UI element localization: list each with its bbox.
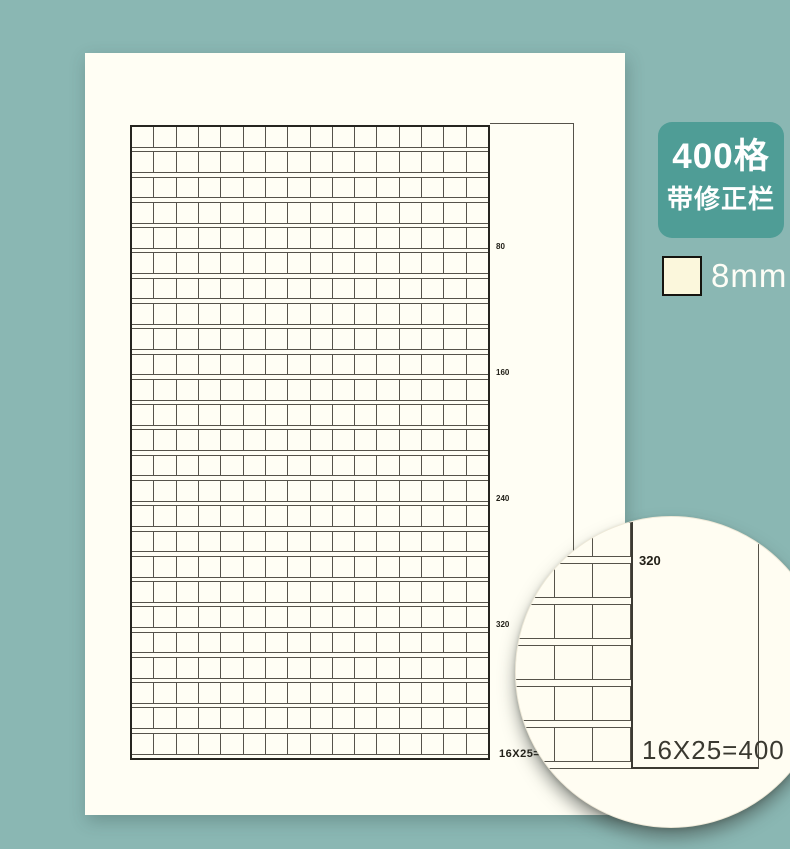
grid-cell	[221, 557, 243, 577]
grid-cell	[555, 646, 593, 679]
grid-cell	[422, 633, 444, 653]
grid-cell	[221, 607, 243, 627]
grid-cell	[288, 329, 310, 349]
grid-cell	[311, 607, 333, 627]
grid-cell	[333, 152, 355, 172]
grid-cell	[177, 683, 199, 703]
grid-cell	[400, 532, 422, 552]
grid-cell	[154, 557, 176, 577]
grid-row	[132, 127, 488, 152]
grid-cell	[221, 279, 243, 299]
grid-cell	[311, 228, 333, 248]
grid-cell	[154, 304, 176, 324]
grid-cell	[593, 687, 631, 720]
grid-cell	[132, 355, 154, 375]
grid-row	[132, 304, 488, 329]
grid-cell	[288, 380, 310, 400]
grid-cell	[355, 430, 377, 450]
grid-cell	[444, 481, 466, 501]
grid-cell	[400, 228, 422, 248]
grid-cell	[444, 253, 466, 273]
grid-cell	[244, 203, 266, 223]
grid-cell	[311, 279, 333, 299]
product-image: _____年__月__日 星期__天气_____ 80 160 240 320 …	[0, 0, 790, 849]
grid-cell-row	[132, 633, 488, 654]
grid-cell	[333, 734, 355, 754]
grid-cell	[400, 683, 422, 703]
grid-cell	[221, 355, 243, 375]
spec-badge: 400格 带修正栏	[658, 122, 784, 238]
grid-cell	[177, 253, 199, 273]
grid-cell	[154, 456, 176, 476]
grid-cell	[266, 279, 288, 299]
grid-cell	[400, 152, 422, 172]
grid-cell	[422, 152, 444, 172]
grid-cell	[132, 430, 154, 450]
grid-cell	[444, 506, 466, 526]
grid-cell	[244, 582, 266, 602]
grid-cell-row	[515, 687, 631, 721]
cell-size-swatch	[662, 256, 702, 296]
grid-cell	[422, 380, 444, 400]
grid-cell	[132, 633, 154, 653]
grid-cell	[199, 506, 221, 526]
grid-cell-row	[132, 279, 488, 300]
margin-top-line	[490, 123, 574, 124]
grid-cell	[132, 228, 154, 248]
grid-cell	[154, 683, 176, 703]
grid-cell	[266, 152, 288, 172]
grid-cell	[288, 658, 310, 678]
grid-cell	[177, 355, 199, 375]
grid-cell	[132, 203, 154, 223]
grid-cell	[177, 380, 199, 400]
grid-cell	[154, 506, 176, 526]
grid-cell	[221, 532, 243, 552]
grid-cell	[355, 633, 377, 653]
grid-cell-row	[132, 127, 488, 148]
grid-cell	[467, 355, 488, 375]
grid-cell	[377, 405, 399, 425]
grid-cell	[555, 605, 593, 638]
grid-cell	[377, 734, 399, 754]
grid-cell	[288, 481, 310, 501]
grid-cell	[311, 203, 333, 223]
grid-cell	[377, 532, 399, 552]
grid-cell	[199, 456, 221, 476]
grid-cell	[132, 178, 154, 198]
grid-cell	[467, 178, 488, 198]
grid-cell	[221, 430, 243, 450]
grid-cell	[400, 329, 422, 349]
grid-row	[515, 728, 631, 769]
grid-row	[515, 564, 631, 605]
grid-cell	[444, 456, 466, 476]
grid-cell	[311, 127, 333, 147]
grid-cell	[377, 355, 399, 375]
grid-cell	[333, 633, 355, 653]
grid-cell	[311, 582, 333, 602]
grid-cell	[355, 708, 377, 728]
grid-cell	[355, 329, 377, 349]
grid-cell	[177, 607, 199, 627]
grid-cell	[467, 329, 488, 349]
grid-cell	[467, 380, 488, 400]
grid-cell	[244, 329, 266, 349]
grid-cell	[467, 481, 488, 501]
grid-cell	[288, 152, 310, 172]
grid-cell	[355, 380, 377, 400]
grid-row	[132, 203, 488, 228]
grid-cell	[132, 380, 154, 400]
grid-cell	[311, 304, 333, 324]
grid-cell	[177, 178, 199, 198]
grid-cell	[333, 329, 355, 349]
grid-cell	[244, 430, 266, 450]
grid-cell	[593, 646, 631, 679]
badge-feature: 带修正栏	[658, 179, 784, 219]
grid-cell	[177, 734, 199, 754]
grid-cell	[311, 430, 333, 450]
grid-cell	[132, 557, 154, 577]
grid-cell	[377, 203, 399, 223]
grid-cell	[422, 405, 444, 425]
magnified-bottom-line	[631, 767, 759, 769]
grid-cell	[333, 582, 355, 602]
grid-cell	[221, 405, 243, 425]
grid-row	[132, 557, 488, 582]
grid-cell	[132, 405, 154, 425]
grid-cell	[199, 481, 221, 501]
magnified-row-marker: 320	[639, 553, 661, 568]
grid-cell	[288, 683, 310, 703]
grid-row	[515, 687, 631, 728]
grid-cell	[333, 456, 355, 476]
grid-cell	[516, 646, 554, 679]
grid-cell	[467, 152, 488, 172]
grid-cell-row	[132, 380, 488, 401]
grid-cell	[199, 582, 221, 602]
grid-cell	[199, 430, 221, 450]
grid-cell	[333, 228, 355, 248]
grid-cell	[199, 203, 221, 223]
grid-cell-row	[515, 605, 631, 639]
grid-cell	[244, 178, 266, 198]
grid-cell	[422, 481, 444, 501]
grid-cell	[177, 633, 199, 653]
grid-cell	[177, 304, 199, 324]
grid-cell	[444, 708, 466, 728]
grid-cell	[288, 279, 310, 299]
grid-row	[132, 658, 488, 683]
grid-cell	[444, 355, 466, 375]
grid-cell-row	[132, 178, 488, 199]
grid-cell	[400, 506, 422, 526]
grid-cell	[199, 658, 221, 678]
grid-cell	[311, 152, 333, 172]
grid-cell	[377, 329, 399, 349]
grid-cell	[266, 557, 288, 577]
grid-cell	[444, 228, 466, 248]
grid-cell	[444, 203, 466, 223]
grid-cell	[288, 734, 310, 754]
grid-cell	[266, 380, 288, 400]
grid-cell	[221, 380, 243, 400]
grid-cell	[555, 523, 593, 556]
grid-cell	[199, 683, 221, 703]
grid-cell	[244, 127, 266, 147]
grid-cell	[311, 506, 333, 526]
grid-cell	[221, 658, 243, 678]
grid-cell	[377, 708, 399, 728]
grid-cell	[400, 582, 422, 602]
grid-cell	[467, 304, 488, 324]
grid-cell	[288, 532, 310, 552]
grid-cell	[516, 564, 554, 597]
grid-cell	[333, 708, 355, 728]
grid-cell	[244, 708, 266, 728]
grid-cell	[400, 253, 422, 273]
grid-cell	[311, 355, 333, 375]
badge-grid-count: 400格	[658, 135, 784, 179]
grid-cell	[400, 405, 422, 425]
grid-cell	[244, 481, 266, 501]
grid-row	[132, 683, 488, 708]
grid-cell-row	[132, 481, 488, 502]
grid-cell	[467, 734, 488, 754]
grid-cell	[400, 734, 422, 754]
grid-cell	[355, 253, 377, 273]
grid-cell	[444, 405, 466, 425]
grid-cell	[244, 355, 266, 375]
grid-cell	[311, 456, 333, 476]
grid-cell	[400, 304, 422, 324]
magnified-total-label: 16X25=400	[642, 735, 785, 766]
grid-cell	[467, 582, 488, 602]
grid-cell	[199, 253, 221, 273]
grid-cell	[333, 683, 355, 703]
grid-cell	[444, 430, 466, 450]
grid-cell	[311, 481, 333, 501]
grid-cell	[288, 178, 310, 198]
cell-size-label: 8mm	[662, 256, 787, 296]
grid-cell	[244, 633, 266, 653]
grid-cell	[422, 607, 444, 627]
grid-cell-row	[515, 523, 631, 557]
grid-cell	[422, 582, 444, 602]
grid-cell	[132, 506, 154, 526]
grid-cell	[467, 658, 488, 678]
grid-cell	[244, 607, 266, 627]
grid-cell	[422, 683, 444, 703]
grid-row	[132, 178, 488, 203]
grid-cell	[355, 456, 377, 476]
grid-cell	[444, 380, 466, 400]
grid-cell	[199, 127, 221, 147]
grid-cell	[266, 127, 288, 147]
grid-cell	[221, 152, 243, 172]
grid-cell	[154, 127, 176, 147]
grid-cell	[132, 532, 154, 552]
grid-cell	[355, 734, 377, 754]
grid-cell	[154, 329, 176, 349]
grid-cell	[199, 607, 221, 627]
grid-cell	[400, 279, 422, 299]
grid-cell	[422, 708, 444, 728]
grid-cell	[516, 605, 554, 638]
grid-row	[132, 582, 488, 607]
grid-cell	[266, 683, 288, 703]
grid-cell	[266, 253, 288, 273]
grid-cell	[132, 481, 154, 501]
grid-cell	[333, 304, 355, 324]
grid-cell	[244, 506, 266, 526]
grid-cell	[377, 557, 399, 577]
grid-cell	[467, 228, 488, 248]
grid-cell	[422, 456, 444, 476]
grid-cell	[221, 708, 243, 728]
grid-cell	[177, 203, 199, 223]
grid-cell	[288, 355, 310, 375]
grid-row	[132, 506, 488, 531]
grid-cell	[132, 658, 154, 678]
grid-cell	[422, 203, 444, 223]
grid-cell	[593, 564, 631, 597]
grid-cell-row	[132, 582, 488, 603]
grid-cell-row	[132, 658, 488, 679]
grid-cell	[154, 203, 176, 223]
grid-cell	[244, 380, 266, 400]
grid-cell	[333, 127, 355, 147]
grid-cell	[221, 734, 243, 754]
grid-cell	[154, 152, 176, 172]
grid-cell	[199, 633, 221, 653]
grid-cell	[444, 607, 466, 627]
grid-row	[132, 405, 488, 430]
grid-cell	[154, 430, 176, 450]
grid-cell	[311, 329, 333, 349]
grid-cell	[266, 633, 288, 653]
grid-cell-row	[132, 734, 488, 755]
grid-cell	[444, 279, 466, 299]
grid-cell	[355, 532, 377, 552]
grid-cell	[199, 380, 221, 400]
grid-cell	[177, 329, 199, 349]
grid-cell	[377, 127, 399, 147]
grid-row	[132, 481, 488, 506]
grid-cell	[422, 430, 444, 450]
grid-cell	[422, 506, 444, 526]
grid-cell	[377, 253, 399, 273]
grid-cell	[377, 228, 399, 248]
grid-cell	[177, 557, 199, 577]
grid-cell	[154, 607, 176, 627]
grid-cell	[199, 405, 221, 425]
grid-cell	[333, 430, 355, 450]
row-marker-320: 320	[496, 621, 509, 629]
grid-cell-row	[132, 430, 488, 451]
grid-cell	[377, 178, 399, 198]
grid-cell	[422, 734, 444, 754]
grid-row	[132, 355, 488, 380]
grid-row	[132, 228, 488, 253]
grid-cell	[467, 203, 488, 223]
grid-cell	[377, 152, 399, 172]
grid-cell	[288, 456, 310, 476]
grid-cell	[266, 304, 288, 324]
grid-cell	[311, 557, 333, 577]
grid-cell	[221, 178, 243, 198]
grid-cell	[177, 152, 199, 172]
grid-cell	[444, 127, 466, 147]
grid-cell	[288, 557, 310, 577]
grid-cell	[177, 127, 199, 147]
grid-cell	[266, 456, 288, 476]
grid-cell	[221, 456, 243, 476]
grid-cell-row	[132, 557, 488, 578]
grid-cell	[377, 304, 399, 324]
grid-cell	[593, 728, 631, 761]
grid-cell	[244, 253, 266, 273]
grid-cell	[400, 203, 422, 223]
grid-cell	[221, 582, 243, 602]
grid-row	[515, 523, 631, 564]
grid-cell	[555, 564, 593, 597]
grid-cell	[244, 532, 266, 552]
grid-row	[132, 279, 488, 304]
grid-cell	[221, 506, 243, 526]
grid-cell	[377, 279, 399, 299]
grid-cell	[132, 607, 154, 627]
grid-cell	[132, 683, 154, 703]
grid-cell	[400, 355, 422, 375]
grid-cell	[244, 279, 266, 299]
grid-cell	[177, 405, 199, 425]
grid-cell	[400, 708, 422, 728]
grid-cell	[288, 253, 310, 273]
grid-cell	[444, 633, 466, 653]
grid-row	[132, 734, 488, 758]
grid-cell	[244, 456, 266, 476]
grid-cell	[132, 582, 154, 602]
grid-cell	[132, 152, 154, 172]
grid-cell	[516, 728, 554, 761]
grid-cell	[221, 127, 243, 147]
grid-cell	[555, 687, 593, 720]
grid-cell	[355, 355, 377, 375]
grid-cell	[444, 734, 466, 754]
grid-cell	[266, 228, 288, 248]
grid-cell-row	[132, 683, 488, 704]
grid-cell	[400, 633, 422, 653]
grid-cell	[311, 633, 333, 653]
grid-cell	[444, 683, 466, 703]
grid-cell	[154, 582, 176, 602]
grid-cell	[221, 304, 243, 324]
grid-cell	[132, 304, 154, 324]
grid-cell	[154, 633, 176, 653]
grid-cell	[221, 253, 243, 273]
grid-cell	[266, 607, 288, 627]
grid-cell	[355, 557, 377, 577]
grid-cell	[177, 506, 199, 526]
grid-cell	[444, 557, 466, 577]
grid-cell	[266, 734, 288, 754]
grid-cell	[355, 304, 377, 324]
grid-cell-row	[132, 203, 488, 224]
grid-cell	[467, 708, 488, 728]
grid-cell	[311, 380, 333, 400]
